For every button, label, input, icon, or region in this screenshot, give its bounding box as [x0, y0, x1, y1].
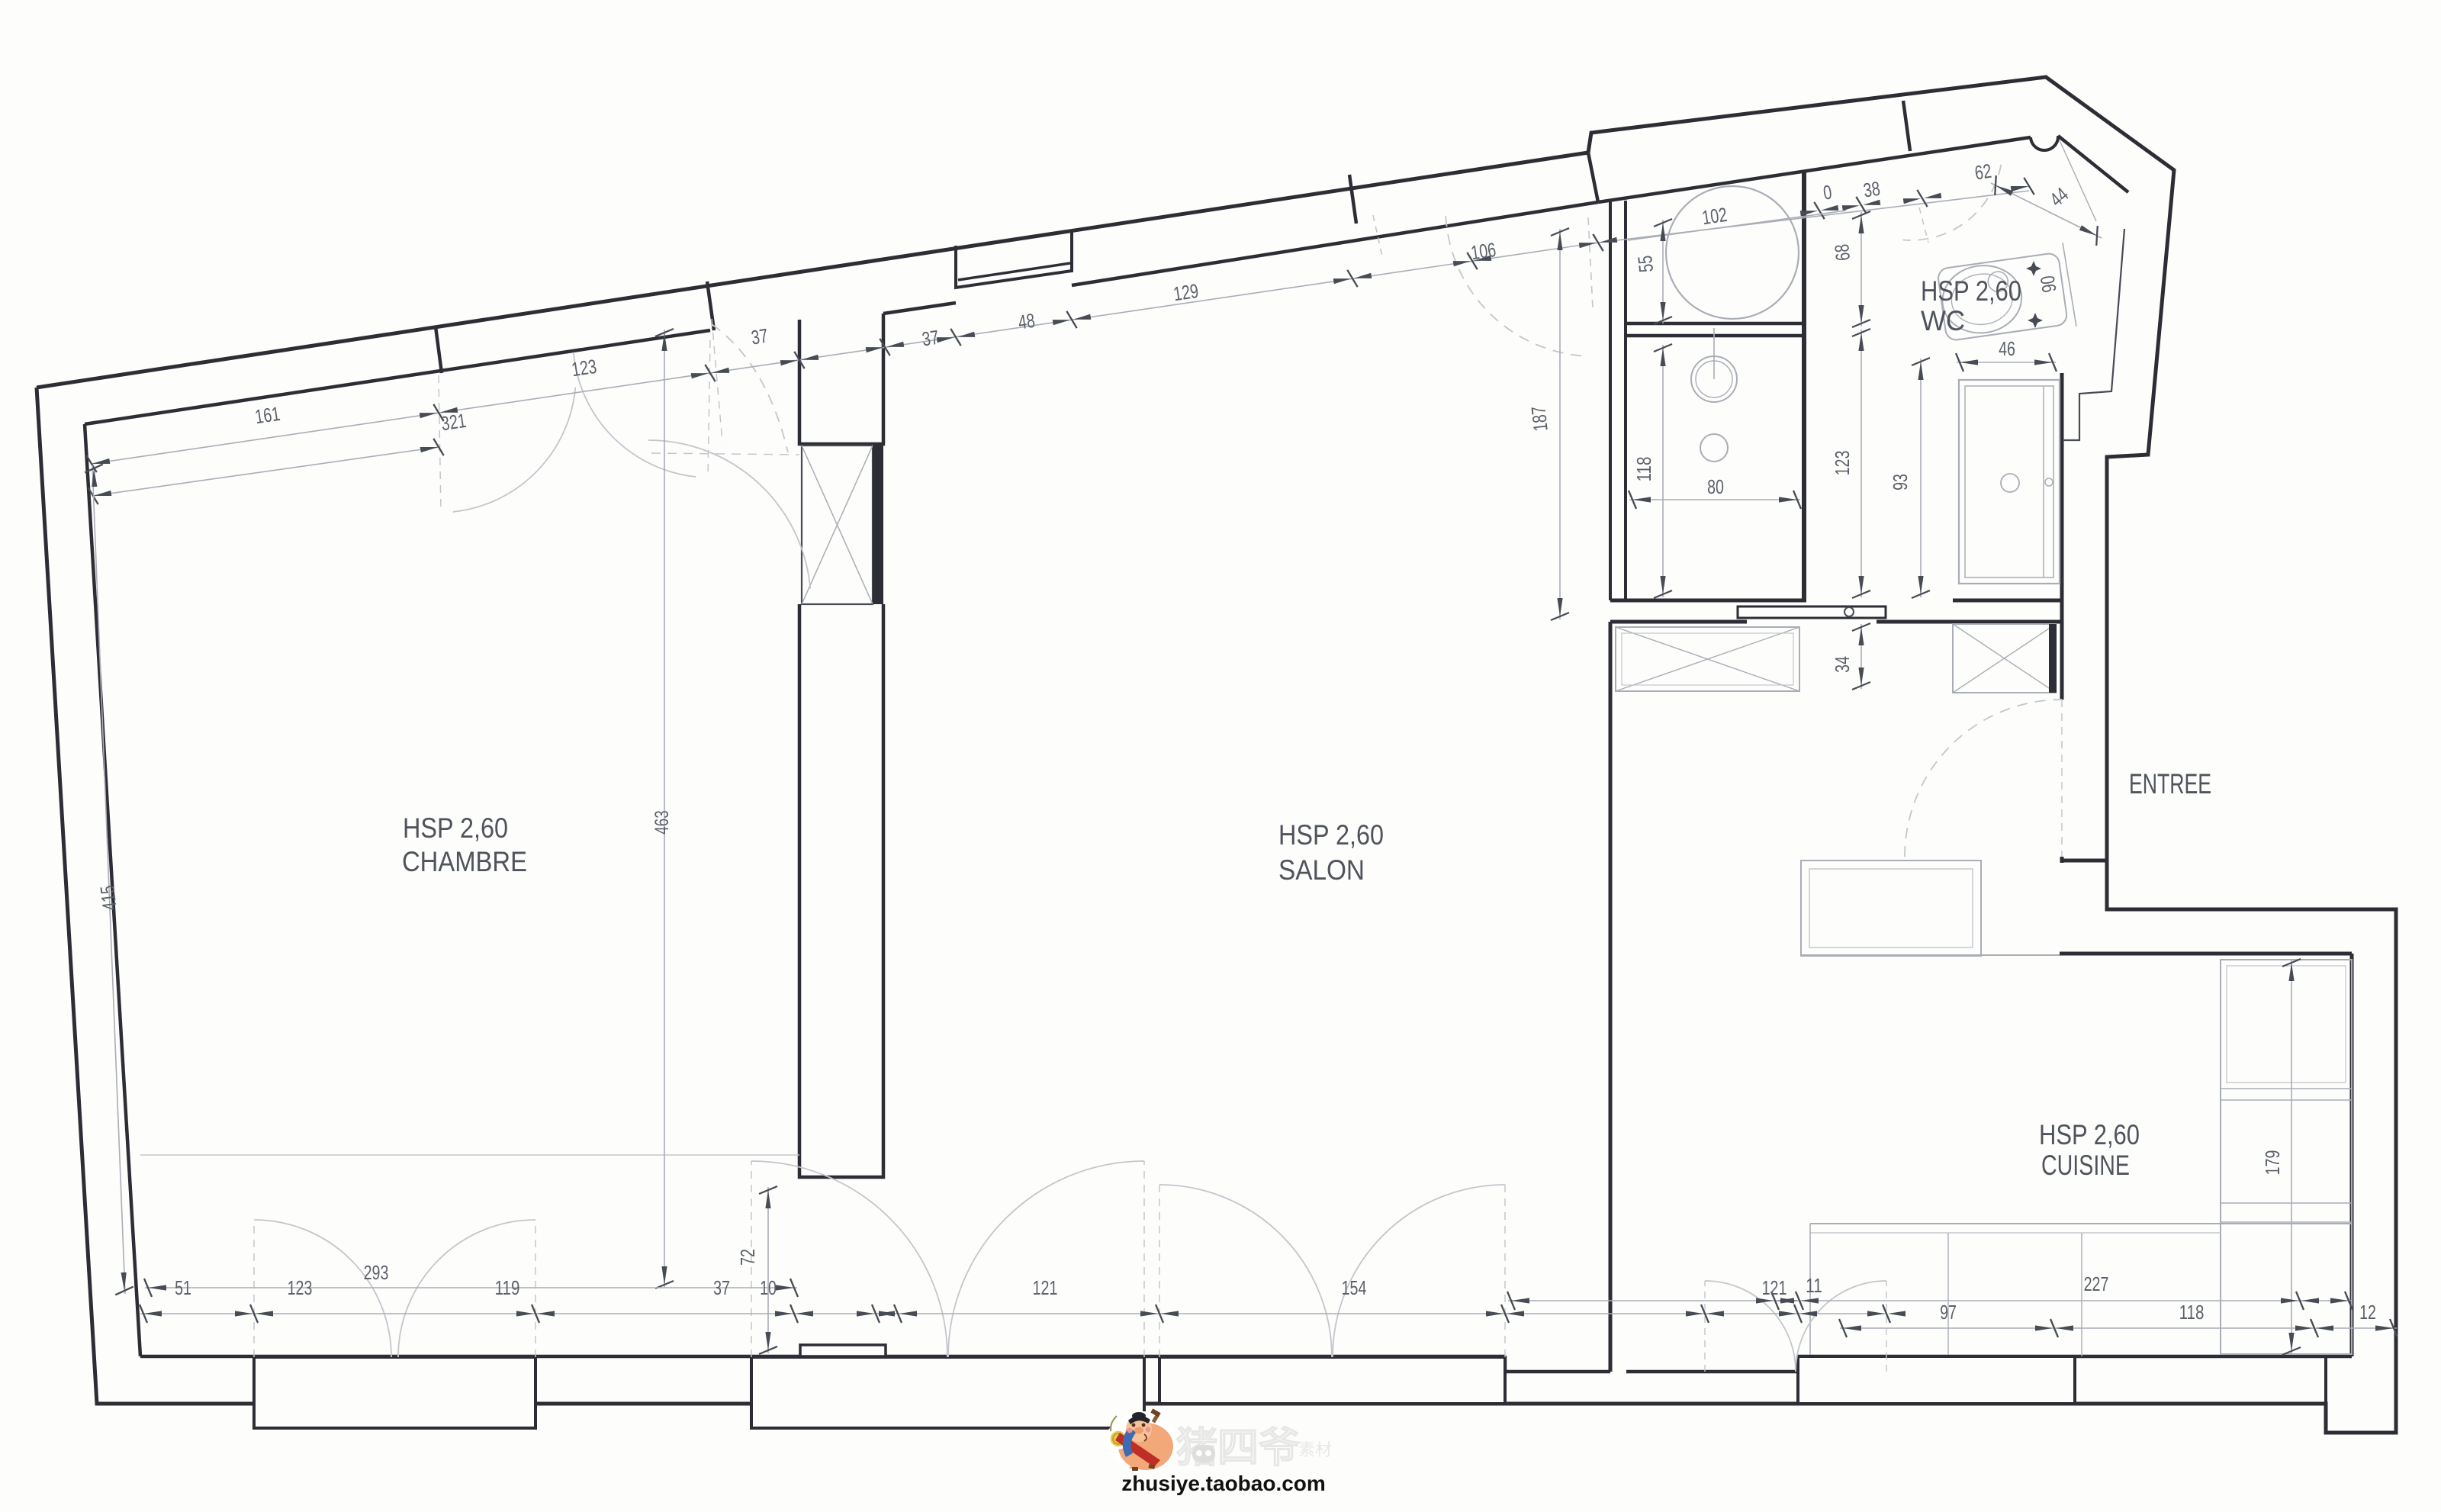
svg-text:zhusiye.taobao.com: zhusiye.taobao.com: [1121, 1472, 1326, 1495]
svg-text:154: 154: [1342, 1276, 1367, 1299]
svg-text:129: 129: [1172, 279, 1200, 305]
svg-text:68: 68: [1830, 243, 1854, 262]
svg-text:55: 55: [1633, 255, 1658, 274]
svg-text:179: 179: [2261, 1150, 2284, 1176]
svg-text:80: 80: [1707, 475, 1724, 498]
svg-text:93: 93: [1889, 474, 1912, 491]
svg-text:102: 102: [1700, 203, 1729, 229]
svg-text:SALON: SALON: [1278, 854, 1365, 886]
svg-text:37: 37: [713, 1276, 730, 1299]
svg-text:38: 38: [1862, 177, 1882, 202]
svg-text:HSP 2,60: HSP 2,60: [403, 812, 508, 844]
svg-text:123: 123: [1831, 451, 1854, 476]
svg-text:ENTREE: ENTREE: [2129, 768, 2211, 799]
svg-text:37: 37: [921, 326, 941, 351]
svg-text:10: 10: [760, 1276, 777, 1299]
svg-text:161: 161: [253, 402, 281, 428]
svg-text:46: 46: [1999, 337, 2015, 360]
svg-text:HSP 2,60: HSP 2,60: [1921, 275, 2021, 307]
svg-text:121: 121: [1762, 1276, 1787, 1299]
svg-text:素材: 素材: [1298, 1440, 1332, 1459]
svg-text:97: 97: [1940, 1301, 1957, 1324]
svg-text:HSP 2,60: HSP 2,60: [2039, 1119, 2140, 1150]
svg-text:227: 227: [2084, 1272, 2109, 1295]
svg-text:123: 123: [288, 1276, 313, 1299]
svg-text:463: 463: [651, 810, 673, 835]
svg-text:106: 106: [1469, 238, 1497, 264]
svg-text:CHAMBRE: CHAMBRE: [402, 846, 527, 877]
svg-text:51: 51: [175, 1276, 191, 1299]
svg-text:WC: WC: [1921, 305, 1965, 336]
svg-text:321: 321: [439, 409, 468, 435]
svg-text:118: 118: [2179, 1301, 2205, 1324]
svg-text:12: 12: [2359, 1301, 2376, 1324]
svg-text:72: 72: [736, 1249, 759, 1266]
svg-text:34: 34: [1831, 656, 1854, 673]
svg-text:48: 48: [1017, 309, 1037, 334]
svg-text:415: 415: [95, 884, 121, 912]
svg-text:HSP 2,60: HSP 2,60: [1278, 819, 1384, 851]
svg-text:123: 123: [570, 355, 598, 381]
svg-text:121: 121: [1033, 1276, 1058, 1299]
svg-text:293: 293: [364, 1261, 389, 1284]
svg-text:187: 187: [1526, 405, 1552, 433]
svg-text:118: 118: [1632, 457, 1655, 482]
svg-text:CUISINE: CUISINE: [2041, 1150, 2130, 1181]
svg-text:62: 62: [1973, 159, 1993, 185]
svg-text:119: 119: [495, 1276, 520, 1299]
svg-text:11: 11: [1806, 1274, 1822, 1297]
svg-text:90: 90: [2036, 274, 2061, 294]
svg-text:37: 37: [750, 324, 770, 349]
